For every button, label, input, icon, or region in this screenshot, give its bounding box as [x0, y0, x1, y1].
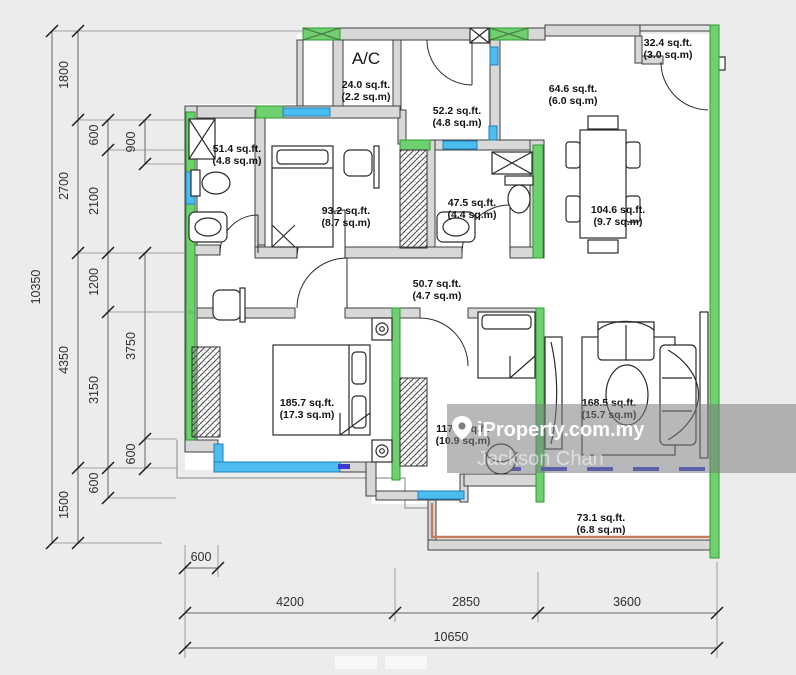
room-label-master-sqft: 185.7 sq.ft.	[280, 397, 334, 409]
room-label-bath1-sqft: 51.4 sq.ft.	[213, 143, 262, 155]
dim-left-2100: 2100	[87, 187, 101, 215]
floor-plan: A/C 24.0 sq.ft. (2.2 sq.m) 52.2 sq.ft. (…	[0, 0, 796, 675]
room-label-balcony-top-sqft: 32.4 sq.ft.	[644, 37, 693, 49]
dim-bottom-3600: 3600	[613, 595, 641, 609]
room-label-kitchen-sqft: 64.6 sq.ft.	[549, 83, 598, 95]
room-label-ac-name: A/C	[352, 49, 380, 68]
watermark: iProperty.com.my Jackson Chan	[447, 404, 796, 473]
bedroom3-wardrobe	[400, 378, 427, 466]
room-label-hall-sqft: 50.7 sq.ft.	[413, 278, 462, 290]
room-label-balcony-sqm: (6.8 sq.m)	[576, 524, 625, 536]
room-label-ac-sqft: 24.0 sq.ft.	[342, 79, 391, 91]
dim-left-600a: 600	[87, 125, 101, 146]
room-label-bath2-sqm: (4.4 sq.m)	[447, 209, 496, 221]
room-label-bath1-sqm: (4.8 sq.m)	[212, 155, 261, 167]
room-label-balcony-top-sqm: (3.0 sq.m)	[643, 49, 692, 61]
dim-left-1200: 1200	[87, 268, 101, 296]
room-label-balcony-sqft: 73.1 sq.ft.	[577, 512, 626, 524]
room-label-bath2-sqft: 47.5 sq.ft.	[448, 197, 497, 209]
room-label-dining-sqm: (9.7 sq.m)	[593, 216, 642, 228]
room-label-kitchen-sqm: (6.0 sq.m)	[548, 95, 597, 107]
dim-bottom-4200: 4200	[276, 595, 304, 609]
room-label-foyer-sqm: (4.8 sq.m)	[432, 117, 481, 129]
room-label-hall-sqm: (4.7 sq.m)	[412, 290, 461, 302]
room-label-foyer-sqft: 52.2 sq.ft.	[433, 105, 482, 117]
dim-left-2700: 2700	[57, 172, 71, 200]
dim-left-900: 900	[124, 132, 138, 153]
watermark-brand: iProperty.com.my	[477, 419, 645, 441]
dim-left-1500: 1500	[57, 491, 71, 519]
dim-left-1800: 1800	[57, 61, 71, 89]
bedroom2-wardrobe	[400, 150, 427, 248]
dim-bottom-600: 600	[191, 550, 212, 564]
room-label-bedroom2-sqft: 93.2 sq.ft.	[322, 205, 371, 217]
watermark-agent: Jackson Chan	[477, 448, 604, 470]
room-label-dining-sqft: 104.6 sq.ft.	[591, 204, 645, 216]
dim-left-600c: 600	[124, 444, 138, 465]
pale-bars	[335, 656, 427, 669]
room-label-bedroom2-sqm: (8.7 sq.m)	[321, 217, 370, 229]
master-wardrobe	[192, 347, 220, 437]
room-label-master-sqm: (17.3 sq.m)	[280, 409, 335, 421]
dim-left-600b: 600	[87, 473, 101, 494]
dim-left-4350: 4350	[57, 346, 71, 374]
dim-bottom-2850: 2850	[452, 595, 480, 609]
master-desk-chair	[213, 288, 245, 322]
dim-left-total: 10350	[29, 270, 43, 305]
dim-bottom-total: 10650	[434, 630, 469, 644]
duct-hatch	[470, 28, 489, 43]
bottom-dimensions: 600 4200 2850 3600 10650	[179, 545, 723, 658]
dim-left-3150: 3150	[87, 376, 101, 404]
dim-left-3750: 3750	[124, 332, 138, 360]
room-label-ac-sqm: (2.2 sq.m)	[341, 91, 390, 103]
